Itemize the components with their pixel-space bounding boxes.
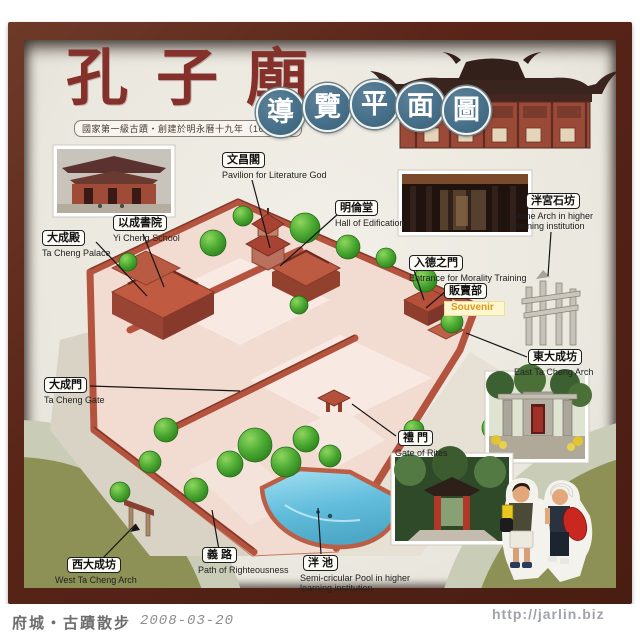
badge-char-4: 面 [396, 82, 445, 131]
label-morality-entrance: 入德之門 Entrance for Morality Training [409, 255, 527, 283]
label-yi-cheng-school: 以成書院 Yi Cheng School [113, 215, 180, 243]
caption-text: 府城・古蹟散步 [12, 612, 131, 633]
label-east-arch-zh: 東大成坊 [528, 349, 582, 365]
label-ta-cheng-gate: 大成門 Ta Cheng Gate [44, 377, 105, 405]
label-hall-of-edification-zh: 明倫堂 [335, 200, 378, 216]
photo-gate-of-rites [391, 446, 513, 545]
label-path-of-righteousness: 義 路 Path of Righteousness [198, 547, 289, 575]
badge-char-5: 圖 [442, 86, 491, 135]
label-morality-entrance-en: Entrance for Morality Training [409, 273, 527, 283]
label-literature-pavilion-en: Pavilion for Literature God [222, 170, 327, 180]
label-gate-of-rites-en: Gate of Rites [395, 448, 448, 458]
caption-date: 2008-03-20 [140, 613, 234, 629]
label-path-of-righteousness-zh: 義 路 [202, 547, 237, 563]
label-west-arch-en: West Ta Cheng Arch [55, 575, 137, 585]
badge-char-3: 平 [350, 80, 399, 129]
label-literature-pavilion-zh: 文昌閣 [222, 152, 265, 168]
label-west-arch: 西大成坊 West Ta Cheng Arch [55, 557, 137, 585]
label-semicircular-pool: 泮 池 Semi-cricular Pool in higher learnin… [300, 555, 420, 593]
label-east-arch: 東大成坊 East Ta Cheng Arch [514, 349, 593, 377]
label-ta-cheng-gate-en: Ta Cheng Gate [44, 395, 105, 405]
label-ta-cheng-gate-zh: 大成門 [44, 377, 87, 393]
kids-cutout [500, 478, 592, 582]
label-hall-of-edification: 明倫堂 Hall of Edification [335, 200, 405, 228]
label-stone-arch: 泮宮石坊 Stone Arch in higher learning insti… [512, 193, 604, 231]
label-souvenir-shop: 販賣部 Souvenir [444, 283, 505, 316]
watermark-url: http://jarlin.biz [492, 606, 605, 622]
label-semicircular-pool-en: Semi-cricular Pool in higher learning in… [300, 573, 420, 593]
label-gate-of-rites: 禮 門 Gate of Rites [395, 430, 448, 458]
label-east-arch-en: East Ta Cheng Arch [514, 367, 593, 377]
label-yi-cheng-school-en: Yi Cheng School [113, 233, 180, 243]
badge-char-1: 導 [256, 88, 305, 137]
label-yi-cheng-school-zh: 以成書院 [113, 215, 167, 231]
label-morality-entrance-zh: 入德之門 [409, 255, 463, 271]
label-semicircular-pool-zh: 泮 池 [303, 555, 338, 571]
photo-ta-cheng-palace [53, 145, 175, 217]
photo-east-arch [485, 364, 592, 463]
label-gate-of-rites-zh: 禮 門 [398, 430, 433, 446]
label-ta-cheng-palace-zh: 大成殿 [42, 230, 85, 246]
label-stone-arch-zh: 泮宮石坊 [526, 193, 580, 209]
label-ta-cheng-palace-en: Ta Cheng Palace [42, 248, 111, 258]
label-literature-pavilion: 文昌閣 Pavilion for Literature God [222, 152, 327, 180]
label-stone-arch-en: Stone Arch in higher learning institutio… [512, 211, 604, 231]
label-path-of-righteousness-en: Path of Righteousness [198, 565, 289, 575]
label-ta-cheng-palace: 大成殿 Ta Cheng Palace [42, 230, 111, 258]
map-stone-arch [522, 270, 580, 345]
label-hall-of-edification-en: Hall of Edification [335, 218, 405, 228]
photo-of-sign: 孔子廟 國家第一級古蹟・創建於明永曆十九年（1665年） 導 覽 平 面 圖 文… [0, 0, 640, 640]
label-west-arch-zh: 西大成坊 [67, 557, 121, 573]
badge-char-2: 覽 [303, 83, 352, 132]
label-souvenir-shop-zh: 販賣部 [444, 283, 487, 299]
label-souvenir-shop-en: Souvenir [444, 301, 505, 316]
